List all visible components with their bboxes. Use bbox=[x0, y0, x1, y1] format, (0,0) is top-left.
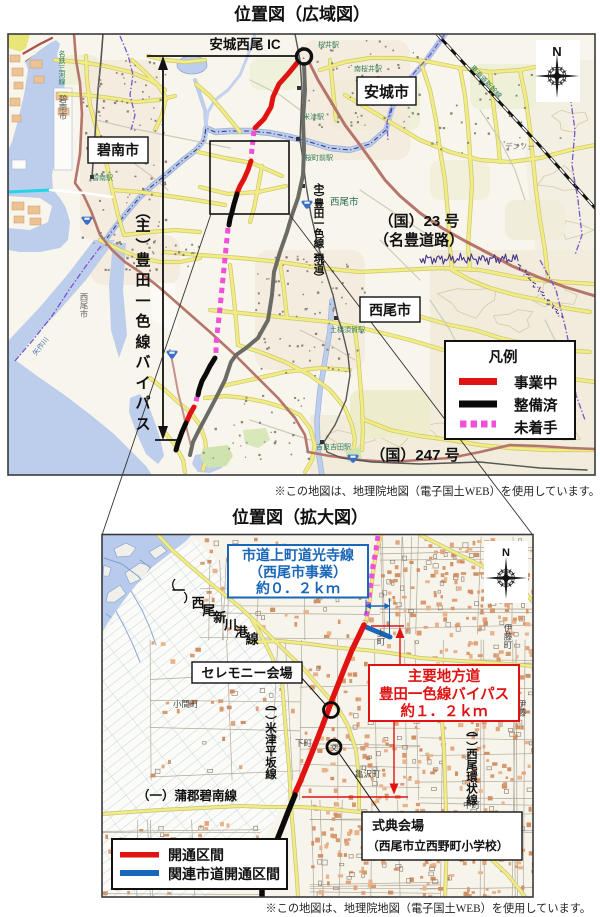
svg-text:西尾市: 西尾市 bbox=[80, 292, 89, 319]
svg-text:︵一︶米津平坂線: ︵一︶米津平坂線 bbox=[264, 699, 277, 781]
svg-text:約０．２ｋｍ: 約０．２ｋｍ bbox=[256, 580, 340, 596]
svg-text:亀沢町: 亀沢町 bbox=[355, 769, 381, 779]
svg-text:安城西尾 IC: 安城西尾 IC bbox=[209, 36, 281, 52]
svg-text:（一）蒲郡碧南線: （一）蒲郡碧南線 bbox=[137, 788, 238, 803]
svg-text:整備済: 整備済 bbox=[514, 397, 558, 415]
svg-text:事業中: 事業中 bbox=[514, 374, 558, 392]
svg-text:下町: 下町 bbox=[295, 738, 313, 748]
svg-text:開通区間: 開通区間 bbox=[168, 847, 224, 863]
svg-text:デンソー: デンソー bbox=[505, 141, 535, 151]
svg-text:碧南駅: 碧南駅 bbox=[92, 173, 113, 182]
svg-text:碧南市: 碧南市 bbox=[96, 142, 139, 158]
svg-text:︵主︶豊田一色線︵現道︶: ︵主︶豊田一色線︵現道︶ bbox=[313, 178, 325, 285]
svg-text:※この地図は、地理院地図（電子国土WEB）を使用しています。: ※この地図は、地理院地図（電子国土WEB）を使用しています。 bbox=[266, 901, 591, 915]
svg-text:西尾市: 西尾市 bbox=[369, 302, 411, 318]
svg-text:安城市: 安城市 bbox=[364, 83, 409, 101]
svg-text:関連市道開通区間: 関連市道開通区間 bbox=[168, 866, 280, 882]
svg-text:N: N bbox=[502, 547, 510, 559]
svg-text:米津駅: 米津駅 bbox=[303, 112, 324, 121]
svg-text:主要地方道: 主要地方道 bbox=[408, 667, 481, 685]
svg-text:桜井駅: 桜井駅 bbox=[318, 40, 339, 49]
svg-text:文: 文 bbox=[330, 743, 338, 753]
svg-text:土橋須賀駅: 土橋須賀駅 bbox=[330, 325, 365, 334]
svg-text:上町: 上町 bbox=[377, 628, 386, 647]
svg-text:南桜井駅: 南桜井駅 bbox=[354, 64, 382, 73]
svg-text:※この地図は、地理院地図（電子国土WEB）を使用しています。: ※この地図は、地理院地図（電子国土WEB）を使用しています。 bbox=[275, 484, 600, 498]
svg-text:伊藤町: 伊藤町 bbox=[504, 623, 513, 650]
svg-text:西尾市: 西尾市 bbox=[330, 196, 359, 208]
svg-text:名鉄三河線: 名鉄三河線 bbox=[59, 49, 66, 86]
svg-text:（国）23 号: （国）23 号 bbox=[379, 212, 460, 230]
svg-text:︵主︶豊田一色線バイパス: ︵主︶豊田一色線バイパス bbox=[134, 204, 150, 433]
svg-text:凡例: 凡例 bbox=[489, 348, 518, 366]
svg-text:（国）247 号: （国）247 号 bbox=[370, 446, 459, 464]
svg-text:式典会場: 式典会場 bbox=[372, 818, 424, 833]
svg-text:（名豊道路）: （名豊道路） bbox=[374, 231, 464, 249]
svg-text:（西尾市立西野町小学校）: （西尾市立西野町小学校） bbox=[367, 839, 509, 853]
svg-text:位置図（拡大図）: 位置図（拡大図） bbox=[232, 507, 368, 527]
svg-text:（西尾市事業）: （西尾市事業） bbox=[249, 564, 347, 580]
svg-text:未着手: 未着手 bbox=[513, 419, 558, 437]
svg-text:市道上町道光寺線: 市道上町道光寺線 bbox=[242, 547, 354, 563]
svg-text:碧南市: 碧南市 bbox=[59, 94, 68, 121]
svg-text:吉良吉田駅: 吉良吉田駅 bbox=[316, 442, 351, 451]
svg-text:セレモニー会場: セレモニー会場 bbox=[201, 666, 292, 681]
svg-text:約１．２ｋｍ: 約１．２ｋｍ bbox=[401, 702, 488, 720]
svg-text:豊田一色線バイパス: 豊田一色線バイパス bbox=[379, 685, 509, 703]
svg-text:桜町前駅: 桜町前駅 bbox=[305, 153, 333, 162]
svg-text:小間町: 小間町 bbox=[173, 699, 199, 709]
svg-text:N: N bbox=[552, 44, 561, 59]
svg-text:︵一︶西尾環状線: ︵一︶西尾環状線 bbox=[465, 725, 478, 807]
svg-text:位置図（広域図）: 位置図（広域図） bbox=[234, 4, 370, 24]
